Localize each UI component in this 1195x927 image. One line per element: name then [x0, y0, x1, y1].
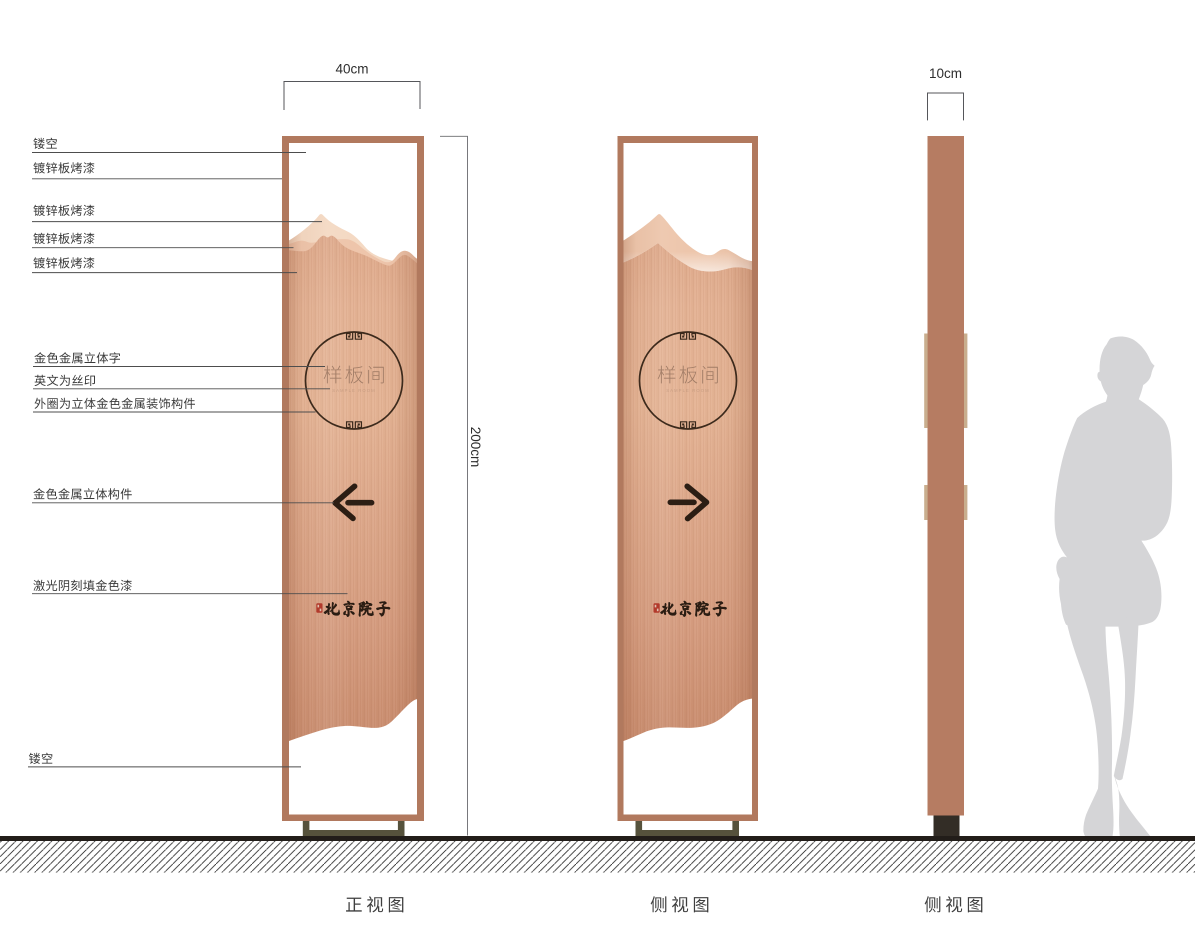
- svg-text:200cm: 200cm: [468, 427, 483, 468]
- svg-text:SAMPLE ROOM: SAMPLE ROOM: [332, 388, 376, 393]
- svg-text:SAMPLE ROOM: SAMPLE ROOM: [666, 388, 710, 393]
- svg-text:40cm: 40cm: [335, 62, 368, 77]
- svg-text:10cm: 10cm: [929, 66, 962, 81]
